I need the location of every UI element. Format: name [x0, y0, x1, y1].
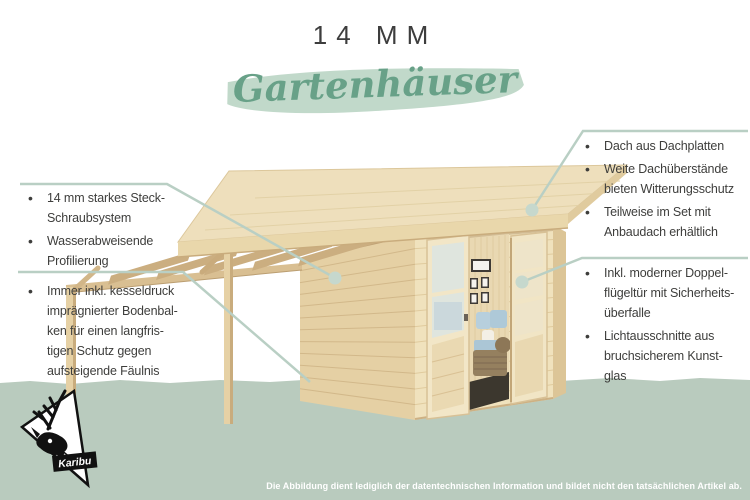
feature-item: • Wasserabweisende Profilierung	[28, 231, 228, 271]
disclaimer-text: Die Abbildung dient lediglich der datent…	[266, 481, 742, 491]
feature-item: • Inkl. moderner Doppel- flügeltür mit S…	[585, 263, 748, 323]
sofa	[473, 310, 511, 376]
bullet-icon: •	[585, 136, 604, 156]
side-wall	[300, 233, 415, 420]
category-title-wrap: Gartenhäuser	[223, 61, 527, 119]
callout-left-top: • 14 mm starkes Steck- Schraubsystem • W…	[28, 188, 228, 271]
callout-right-top: • Dach aus Dachplatten • Weite Dachübers…	[585, 136, 748, 242]
callout-dot	[329, 272, 342, 285]
feature-text: Weite Dachüberstände bieten Witterungssc…	[604, 159, 734, 199]
karibu-logo: Karibu	[6, 382, 128, 500]
left-door	[427, 235, 469, 419]
bullet-icon: •	[28, 188, 47, 208]
infographic-canvas: 14 MM Gartenhäuser • 14 mm starkes Steck…	[0, 0, 750, 500]
sofa-armrest	[495, 337, 511, 353]
door-handle	[464, 314, 468, 321]
callout-dot	[526, 204, 539, 217]
bullet-icon: •	[585, 326, 604, 346]
callout-right-bottom: • Inkl. moderner Doppel- flügeltür mit S…	[585, 263, 748, 386]
feature-text: Dach aus Dachplatten	[604, 136, 724, 156]
feature-item: • Weite Dachüberstände bieten Witterungs…	[585, 159, 748, 199]
callout-left-bottom: • Immer inkl. kesseldruck imprägnierter …	[28, 281, 228, 381]
feature-item: • Teilweise im Set mit Anbaudach erhältl…	[585, 202, 748, 242]
feature-text: 14 mm starkes Steck- Schraubsystem	[47, 188, 165, 228]
bullet-icon: •	[28, 281, 47, 301]
feature-text: Wasserabweisende Profilierung	[47, 231, 153, 271]
feature-text: Teilweise im Set mit Anbaudach erhältlic…	[604, 202, 718, 242]
feature-text: Inkl. moderner Doppel- flügeltür mit Sic…	[604, 263, 734, 323]
bullet-icon: •	[585, 263, 604, 283]
feature-text: Lichtausschnitte aus bruchsicherem Kunst…	[604, 326, 723, 386]
doorway-interior	[469, 234, 511, 410]
feature-item: • Lichtausschnitte aus bruchsicherem Kun…	[585, 326, 748, 386]
feature-item: • Immer inkl. kesseldruck imprägnierter …	[28, 281, 228, 381]
thickness-title: 14 MM	[0, 20, 750, 51]
feature-item: • Dach aus Dachplatten	[585, 136, 748, 156]
bullet-icon: •	[28, 231, 47, 251]
right-door	[511, 232, 547, 404]
bullet-icon: •	[585, 159, 604, 179]
callout-dot	[516, 276, 529, 289]
bullet-icon: •	[585, 202, 604, 222]
right-wall-edge	[553, 225, 566, 399]
feature-item: • 14 mm starkes Steck- Schraubsystem	[28, 188, 228, 228]
feature-text: Immer inkl. kesseldruck imprägnierter Bo…	[47, 281, 178, 381]
